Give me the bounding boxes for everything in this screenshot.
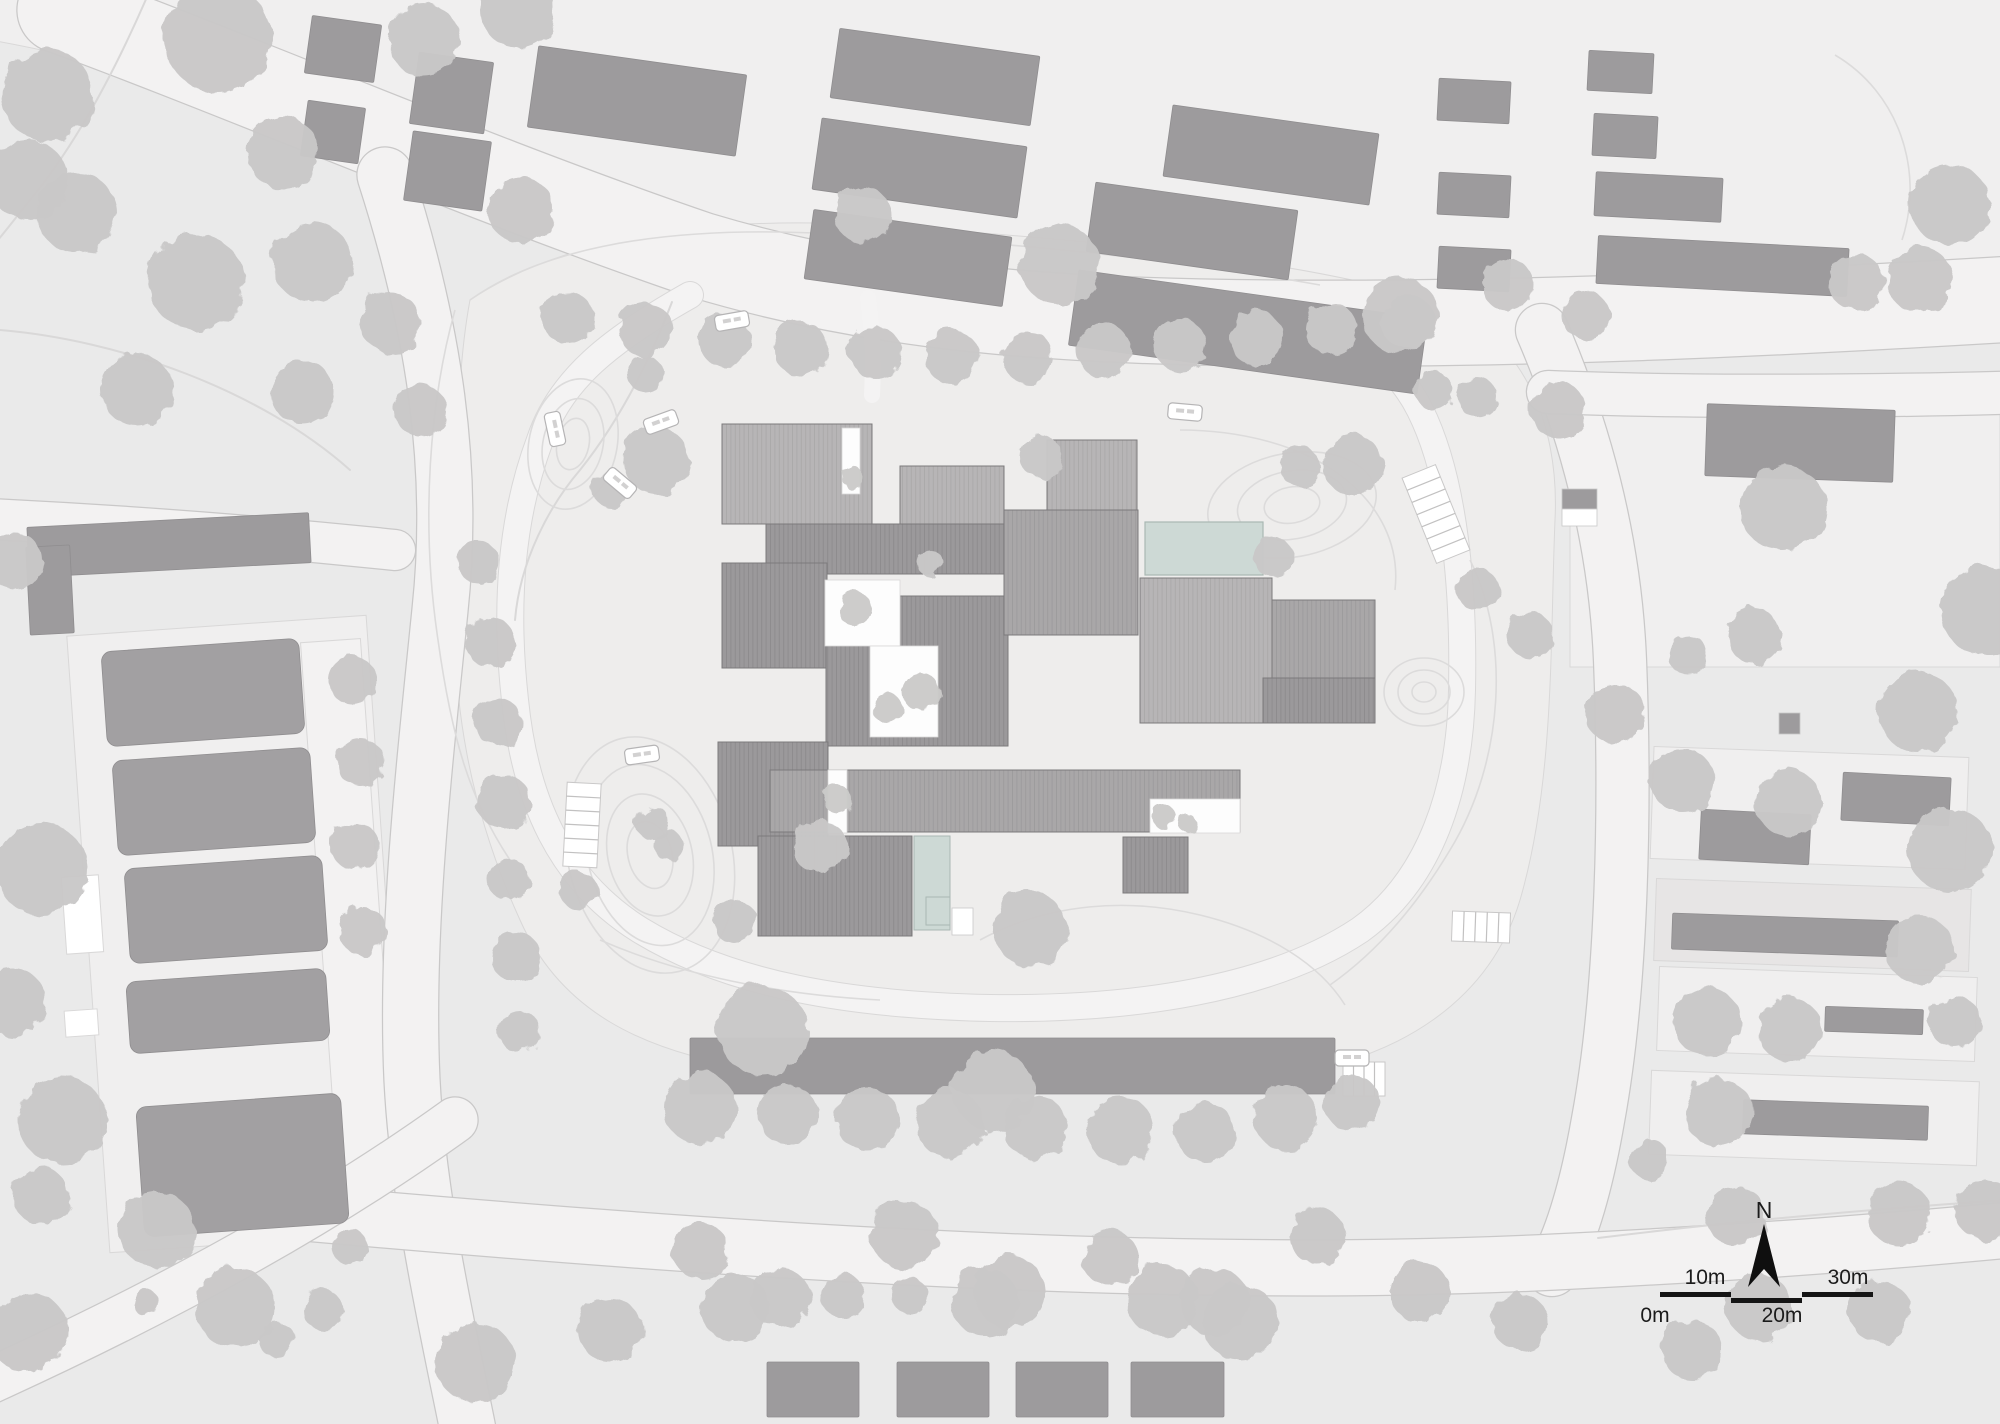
tree-icon	[133, 1290, 159, 1316]
tree-icon	[672, 1222, 728, 1278]
site-plan: N 10m 30m 0m 20m	[0, 0, 2000, 1424]
tree-icon	[903, 674, 941, 712]
tree-icon	[841, 466, 863, 488]
pool	[1145, 522, 1263, 575]
tree-icon	[1457, 569, 1499, 611]
tree-icon	[1324, 1075, 1380, 1131]
tree-icon	[488, 177, 554, 243]
scale-label-30m: 30m	[1828, 1266, 1869, 1289]
tree-icon	[331, 822, 379, 870]
tree-icon	[1457, 377, 1497, 417]
tree-icon	[1530, 382, 1586, 438]
tree-icon	[773, 321, 827, 375]
tree-icon	[13, 1168, 69, 1224]
tree-icon	[1758, 998, 1822, 1062]
tree-icon	[1908, 808, 1992, 892]
tree-icon	[834, 186, 890, 242]
tree-icon	[916, 1090, 984, 1158]
building	[1592, 113, 1658, 158]
scale-label-10m: 10m	[1685, 1266, 1726, 1289]
tree-icon	[1020, 225, 1100, 305]
tree-icon	[1229, 311, 1283, 365]
car-glass	[1176, 408, 1184, 413]
tree-icon	[1929, 996, 1981, 1048]
scale-segment-20-30	[1802, 1292, 1873, 1297]
tree-icon	[1151, 804, 1175, 828]
tree-icon	[303, 1290, 343, 1330]
tree-icon	[542, 292, 594, 344]
tree-icon	[871, 1201, 939, 1269]
tree-icon	[499, 1011, 541, 1053]
scale-segment-10-20	[1731, 1298, 1802, 1303]
tree-icon	[1415, 372, 1453, 410]
tree-icon	[892, 1278, 928, 1314]
building	[304, 15, 381, 82]
tree-icon	[465, 617, 515, 667]
tree-icon	[336, 738, 384, 786]
tree-icon	[1020, 436, 1062, 478]
tree-icon	[717, 985, 807, 1075]
tree-icon	[917, 550, 943, 576]
tree-icon	[36, 172, 116, 252]
tree-icon	[435, 1322, 515, 1402]
building-roof	[1263, 678, 1375, 723]
tree-icon	[1585, 683, 1645, 743]
tree-icon	[338, 906, 386, 954]
tree-icon	[360, 292, 420, 352]
car-glass	[1354, 1055, 1361, 1059]
tree-icon	[1727, 609, 1781, 663]
tree-icon	[925, 330, 979, 384]
tree-icon	[1668, 635, 1708, 675]
tree-icon	[824, 786, 852, 814]
tree-icon	[1280, 447, 1320, 487]
tree-icon	[1290, 1209, 1346, 1265]
tree-icon	[1323, 435, 1383, 495]
tree-icon	[477, 775, 531, 829]
building	[897, 1362, 989, 1417]
car-icon	[1167, 403, 1202, 422]
tree-icon	[1082, 1230, 1138, 1286]
tree-icon	[627, 356, 663, 392]
tree-icon	[2, 50, 94, 142]
tree-icon	[1482, 259, 1534, 311]
building-annex	[952, 908, 973, 935]
paved-pad	[64, 1009, 99, 1037]
tree-icon	[820, 1273, 864, 1317]
tree-icon	[1684, 1078, 1752, 1146]
tree-icon	[1126, 1264, 1198, 1336]
tree-icon	[394, 384, 446, 436]
tree-icon	[1878, 672, 1958, 752]
tree-icon	[272, 222, 352, 302]
site-plan-map: N 10m 30m 0m 20m	[0, 0, 2000, 1424]
building-roof	[722, 563, 827, 668]
pool-strip	[914, 836, 950, 930]
tree-icon	[1662, 1320, 1722, 1380]
tree-icon	[1866, 1181, 1930, 1245]
building	[126, 968, 331, 1054]
map-layers	[0, 0, 2000, 1424]
scale-segment-0-10	[1660, 1292, 1731, 1297]
building-roof	[1140, 578, 1272, 723]
car-glass	[1187, 409, 1194, 414]
tree-icon	[119, 1192, 195, 1268]
tree-icon	[0, 824, 88, 916]
car-icon	[1335, 1050, 1369, 1066]
tree-icon	[951, 1268, 1019, 1336]
tree-icon	[559, 871, 597, 909]
tree-icon	[701, 1274, 769, 1342]
building	[767, 1362, 859, 1417]
tree-icon	[1630, 1140, 1670, 1180]
tree-icon	[1650, 748, 1714, 812]
tree-icon	[1003, 1095, 1067, 1159]
scale-label-20m: 20m	[1762, 1304, 1803, 1327]
building-annex	[1562, 489, 1597, 509]
tree-icon	[578, 1298, 642, 1362]
tree-icon	[654, 831, 684, 861]
tree-icon	[713, 900, 757, 944]
building	[1131, 1362, 1224, 1417]
tree-icon	[1390, 1262, 1450, 1322]
tree-icon	[619, 303, 673, 357]
tree-icon	[1002, 331, 1054, 383]
tree-icon	[1362, 277, 1438, 353]
building-roof	[1123, 837, 1188, 893]
building	[101, 638, 305, 747]
road	[1548, 392, 2000, 396]
parking-stalls	[1451, 911, 1510, 943]
building	[1742, 1100, 1928, 1140]
tree-icon	[1254, 1086, 1318, 1150]
parking-pad	[1451, 911, 1510, 943]
building-roof	[1004, 510, 1138, 635]
tree-icon	[1561, 291, 1609, 339]
tree-icon	[664, 1072, 736, 1144]
tree-icon	[148, 234, 244, 330]
building	[1437, 172, 1511, 218]
tree-icon	[18, 1076, 106, 1164]
building	[112, 747, 316, 856]
tree-icon	[1306, 304, 1358, 356]
parking-stalls	[563, 782, 601, 868]
tree-icon	[474, 698, 522, 746]
tree-icon	[1175, 1102, 1235, 1162]
tree-icon	[836, 1088, 900, 1152]
tree-icon	[1177, 813, 1195, 831]
tree-icon	[758, 1085, 818, 1145]
north-label: N	[1756, 1197, 1773, 1223]
tree-icon	[101, 354, 173, 426]
tree-icon	[388, 4, 460, 76]
tree-icon	[270, 360, 334, 424]
tree-icon	[1492, 1294, 1548, 1350]
tree-icon	[457, 541, 499, 583]
tree-icon	[246, 116, 318, 188]
tree-icon	[1253, 537, 1293, 577]
building-annex	[1562, 509, 1597, 526]
scale-label-0m: 0m	[1640, 1304, 1669, 1327]
tree-icon	[1740, 465, 1826, 551]
tree-icon	[490, 931, 540, 981]
tree-icon	[993, 892, 1067, 966]
tree-icon	[1886, 916, 1954, 984]
tree-icon	[1202, 1284, 1278, 1360]
tree-icon	[792, 819, 846, 873]
tree-icon	[1849, 1281, 1911, 1343]
building	[1825, 1006, 1924, 1034]
building	[1437, 78, 1511, 124]
tree-icon	[1154, 319, 1206, 371]
tree-icon	[259, 1322, 295, 1358]
building	[404, 131, 492, 211]
tree-icon	[488, 859, 530, 901]
tree-icon	[1910, 165, 1990, 245]
tree-icon	[839, 593, 873, 627]
building	[1671, 913, 1898, 957]
tree-icon	[1086, 1096, 1154, 1164]
building	[1587, 50, 1654, 93]
tree-icon	[332, 1229, 368, 1265]
tree-icon	[328, 656, 376, 704]
tree-icon	[872, 693, 902, 723]
car-body	[1335, 1050, 1369, 1066]
tree-icon	[1673, 988, 1741, 1056]
tree-icon	[1828, 254, 1884, 310]
tree-icon	[1755, 769, 1821, 835]
tree-icon	[0, 968, 46, 1036]
tree-icon	[1077, 324, 1131, 378]
building-annex	[1779, 713, 1800, 734]
car-glass	[1343, 1055, 1351, 1059]
building	[1016, 1362, 1108, 1417]
building	[1594, 172, 1723, 223]
building	[124, 855, 328, 964]
tree-icon	[1887, 247, 1953, 313]
car-body	[1167, 403, 1202, 422]
tree-icon	[1507, 612, 1553, 658]
tree-icon	[850, 327, 902, 379]
